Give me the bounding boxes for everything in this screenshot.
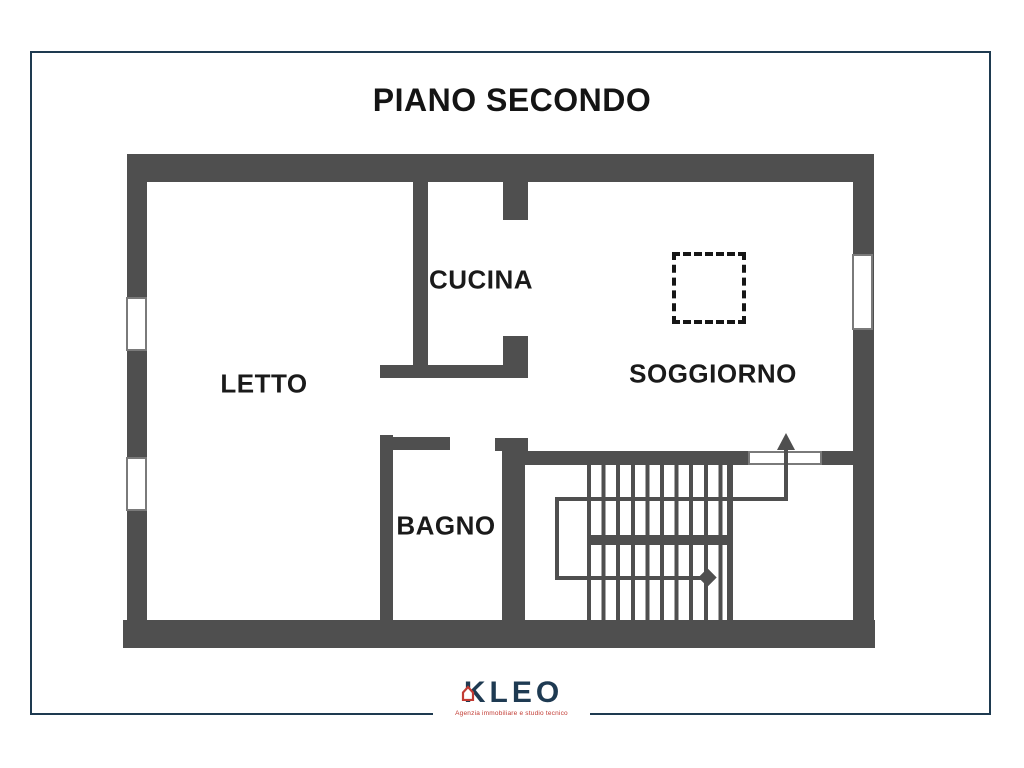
up-arrow-icon: [777, 433, 795, 450]
room-label-letto: LETTO: [220, 369, 307, 400]
window-left-lower: [126, 457, 147, 511]
logo-wordmark: KLEO: [460, 678, 563, 708]
wall-exterior-top: [131, 154, 873, 182]
kleo-logo: KLEO Agenzia immobiliare e studio tecnic…: [433, 666, 590, 728]
stairs-path-bottom-line: [555, 576, 708, 580]
floor-plan-sheet: PIANO SECONDO LETTO CUCINA SOGGIORNO BAG…: [0, 0, 1024, 768]
wall-bagno-top: [393, 437, 450, 450]
wall-exterior-right: [853, 154, 874, 648]
window-left-upper: [126, 297, 147, 351]
window-right: [852, 254, 873, 330]
stairs-path-left-line: [555, 497, 559, 580]
wall-cucina-right-upper: [503, 182, 528, 220]
dashed-square-symbol: [672, 252, 746, 324]
page-title: PIANO SECONDO: [0, 82, 1024, 119]
logo-tagline: Agenzia immobiliare e studio tecnico: [455, 710, 568, 717]
room-label-soggiorno: SOGGIORNO: [629, 359, 797, 390]
wall-bagno-left: [380, 435, 393, 620]
house-icon: [461, 677, 475, 707]
logo-text: KLEO: [464, 676, 563, 709]
wall-cucina-right-lower: [503, 336, 528, 378]
stairs-landing-divider: [587, 535, 733, 545]
room-label-cucina: CUCINA: [429, 265, 533, 296]
wall-stairwell-left: [502, 438, 525, 620]
wall-exterior-left: [127, 154, 147, 648]
stairs-right-edge: [727, 465, 733, 620]
stairs-path-arrow-line: [784, 450, 788, 501]
wall-exterior-bottom: [123, 620, 875, 648]
wall-cucina-left: [413, 182, 428, 366]
stairs-path-top-line: [555, 497, 788, 501]
room-label-bagno: BAGNO: [396, 511, 495, 542]
